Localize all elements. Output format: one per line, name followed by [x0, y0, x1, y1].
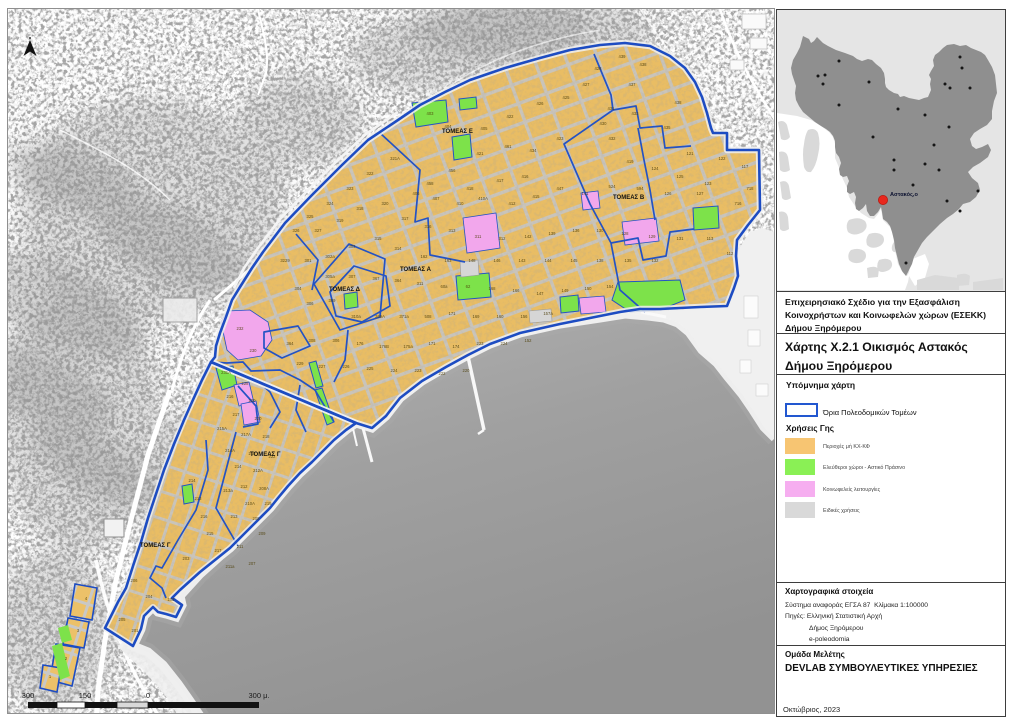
svg-text:205: 205	[119, 617, 127, 622]
svg-text:147: 147	[537, 291, 545, 296]
svg-text:312: 312	[499, 236, 507, 241]
svg-text:302a: 302a	[325, 254, 335, 259]
svg-text:174: 174	[453, 344, 461, 349]
svg-text:217: 217	[215, 548, 223, 553]
svg-text:176B: 176B	[379, 344, 389, 349]
svg-text:318: 318	[357, 206, 365, 211]
svg-text:135: 135	[625, 258, 633, 263]
svg-text:125: 125	[677, 174, 685, 179]
svg-text:369A: 369A	[375, 314, 385, 319]
svg-text:136: 136	[573, 228, 581, 233]
svg-text:122: 122	[719, 156, 727, 161]
svg-text:146: 146	[494, 258, 502, 263]
svg-text:309: 309	[329, 298, 337, 303]
svg-text:311: 311	[417, 281, 424, 286]
svg-text:319: 319	[337, 218, 345, 223]
svg-text:508: 508	[425, 314, 433, 319]
svg-text:438: 438	[640, 62, 648, 67]
svg-text:412: 412	[509, 201, 517, 206]
svg-text:215A: 215A	[217, 426, 227, 431]
svg-text:222: 222	[439, 371, 447, 376]
svg-text:211: 211	[237, 544, 244, 549]
svg-text:202: 202	[168, 597, 176, 602]
svg-text:423: 423	[557, 136, 565, 141]
svg-text:371a: 371a	[399, 314, 409, 319]
svg-text:143: 143	[519, 258, 527, 263]
svg-text:417: 417	[497, 178, 505, 183]
svg-text:60a: 60a	[441, 284, 449, 289]
svg-text:220: 220	[255, 416, 263, 421]
svg-text:127: 127	[697, 191, 705, 196]
svg-text:225: 225	[367, 366, 375, 371]
svg-text:407: 407	[433, 196, 441, 201]
svg-text:427: 427	[583, 82, 591, 87]
svg-text:150: 150	[79, 691, 92, 700]
svg-text:228: 228	[242, 381, 250, 386]
svg-text:208: 208	[253, 516, 261, 521]
svg-text:410A: 410A	[478, 196, 488, 201]
svg-text:314: 314	[395, 246, 403, 251]
svg-text:215: 215	[207, 531, 215, 536]
svg-text:128: 128	[622, 231, 630, 236]
svg-text:113: 113	[707, 236, 714, 241]
svg-text:126: 126	[665, 191, 673, 196]
svg-text:232: 232	[237, 326, 245, 331]
svg-text:214A: 214A	[225, 448, 235, 453]
svg-text:231A: 231A	[221, 370, 231, 375]
svg-text:171: 171	[449, 311, 457, 316]
svg-text:0: 0	[146, 691, 150, 700]
svg-text:320: 320	[382, 201, 390, 206]
svg-text:306: 306	[307, 301, 315, 306]
svg-text:121: 121	[687, 151, 695, 156]
svg-text:210A: 210A	[245, 501, 255, 506]
svg-text:415: 415	[533, 194, 541, 199]
svg-text:322: 322	[367, 171, 375, 176]
svg-text:307: 307	[349, 274, 357, 279]
svg-text:175a: 175a	[403, 344, 413, 349]
svg-text:434: 434	[530, 148, 538, 153]
svg-text:324: 324	[327, 201, 335, 206]
svg-text:157a: 157a	[543, 311, 553, 316]
svg-text:304: 304	[295, 286, 303, 291]
svg-text:160: 160	[497, 314, 505, 319]
svg-text:323: 323	[347, 186, 355, 191]
svg-text:123: 123	[705, 181, 713, 186]
svg-text:213a: 213a	[223, 488, 233, 493]
svg-text:364: 364	[395, 278, 403, 283]
svg-text:162: 162	[421, 254, 429, 259]
svg-text:214: 214	[189, 478, 197, 483]
svg-text:432: 432	[609, 136, 617, 141]
svg-text:716: 716	[735, 201, 743, 206]
svg-text:152: 152	[525, 338, 533, 343]
svg-text:224: 224	[391, 368, 399, 373]
svg-text:141: 141	[582, 191, 590, 196]
svg-text:ΤΟΜΕΑΣ Β: ΤΟΜΕΑΣ Β	[613, 195, 645, 201]
svg-text:209: 209	[259, 531, 267, 536]
svg-text:223: 223	[477, 341, 485, 346]
svg-text:214: 214	[235, 464, 243, 469]
svg-text:204: 204	[146, 594, 154, 599]
svg-text:216: 216	[227, 394, 235, 399]
svg-text:217A: 217A	[241, 432, 251, 437]
svg-text:426: 426	[537, 101, 545, 106]
svg-text:213: 213	[231, 514, 239, 519]
svg-text:156: 156	[521, 314, 529, 319]
svg-text:316: 316	[425, 224, 433, 229]
svg-text:211a: 211a	[225, 564, 235, 569]
svg-text:3229: 3229	[280, 258, 290, 263]
svg-text:405: 405	[481, 126, 489, 131]
svg-text:130: 130	[597, 228, 605, 233]
svg-text:406: 406	[413, 191, 421, 196]
svg-text:131: 131	[677, 236, 685, 241]
svg-text:327: 327	[315, 228, 323, 233]
svg-text:226: 226	[343, 364, 351, 369]
svg-text:124: 124	[652, 166, 660, 171]
svg-text:439: 439	[619, 54, 627, 59]
svg-text:154: 154	[607, 284, 615, 289]
svg-text:315: 315	[375, 236, 383, 241]
svg-text:300: 300	[22, 691, 35, 700]
svg-text:206: 206	[131, 578, 139, 583]
svg-text:438: 438	[675, 100, 683, 105]
svg-text:145: 145	[571, 258, 579, 263]
svg-text:422: 422	[507, 114, 515, 119]
svg-text:430: 430	[600, 121, 608, 126]
svg-text:718: 718	[747, 186, 755, 191]
svg-text:447: 447	[557, 186, 565, 191]
svg-text:306: 306	[333, 338, 341, 343]
svg-text:461: 461	[505, 144, 513, 149]
svg-text:208A: 208A	[259, 486, 269, 491]
svg-text:144: 144	[545, 258, 553, 263]
svg-text:410: 410	[457, 201, 465, 206]
svg-text:168: 168	[489, 286, 497, 291]
svg-text:138: 138	[597, 258, 605, 263]
svg-text:301: 301	[305, 258, 313, 263]
svg-text:220: 220	[463, 368, 471, 373]
svg-text:326: 326	[293, 228, 301, 233]
svg-text:ΤΟΜΕΑΣ Α: ΤΟΜΕΑΣ Α	[400, 267, 432, 273]
svg-text:213: 213	[195, 496, 203, 501]
svg-text:166: 166	[513, 288, 521, 293]
svg-text:224: 224	[501, 341, 509, 346]
svg-text:364: 364	[287, 341, 295, 346]
svg-text:524: 524	[609, 184, 617, 189]
svg-text:227: 227	[319, 364, 327, 369]
svg-text:435: 435	[664, 125, 672, 130]
svg-text:310a: 310a	[351, 314, 361, 319]
svg-text:139: 139	[549, 231, 557, 236]
svg-text:311: 311	[475, 234, 482, 239]
svg-text:594: 594	[637, 186, 645, 191]
svg-text:148: 148	[469, 258, 477, 263]
svg-text:218: 218	[263, 434, 271, 439]
svg-text:203: 203	[183, 556, 191, 561]
svg-text:171: 171	[429, 341, 437, 346]
svg-text:216: 216	[201, 514, 209, 519]
svg-text:212A: 212A	[253, 468, 263, 473]
svg-text:142: 142	[525, 234, 533, 239]
svg-text:416: 416	[522, 174, 530, 179]
svg-text:ΤΟΜΕΑΣ Δ: ΤΟΜΕΑΣ Δ	[329, 287, 361, 293]
svg-text:437: 437	[629, 82, 637, 87]
svg-text:300 μ.: 300 μ.	[248, 691, 269, 700]
svg-text:419: 419	[627, 159, 635, 164]
svg-text:112: 112	[727, 251, 734, 256]
svg-text:207: 207	[249, 561, 257, 566]
svg-text:223: 223	[415, 368, 423, 373]
svg-text:229: 229	[297, 361, 305, 366]
svg-text:217: 217	[233, 412, 241, 417]
svg-text:ΤΟΜΕΑΣ Ε: ΤΟΜΕΑΣ Ε	[442, 129, 473, 135]
svg-text:313: 313	[449, 228, 457, 233]
svg-text:Αστακός,ο: Αστακός,ο	[890, 192, 918, 198]
svg-text:149: 149	[562, 288, 570, 293]
svg-text:317: 317	[402, 216, 410, 221]
svg-text:321A: 321A	[390, 156, 400, 161]
svg-text:219: 219	[265, 501, 273, 506]
svg-text:201: 201	[132, 628, 140, 633]
svg-text:425: 425	[563, 95, 571, 100]
svg-text:132: 132	[652, 258, 660, 263]
svg-text:163: 163	[445, 258, 453, 263]
svg-text:431: 431	[608, 106, 616, 111]
svg-text:ΤΟΜΕΑΣ Γ: ΤΟΜΕΑΣ Γ	[250, 452, 281, 458]
svg-text:458: 458	[427, 181, 435, 186]
svg-text:428: 428	[595, 66, 603, 71]
svg-text:117: 117	[742, 164, 749, 169]
svg-text:169: 169	[473, 314, 481, 319]
svg-text:305a: 305a	[325, 274, 335, 279]
svg-text:456: 456	[449, 168, 457, 173]
svg-text:418: 418	[467, 186, 475, 191]
svg-text:212: 212	[241, 484, 249, 489]
svg-text:220: 220	[249, 398, 257, 403]
svg-text:176: 176	[357, 341, 365, 346]
svg-text:303: 303	[349, 244, 357, 249]
svg-text:367: 367	[373, 276, 381, 281]
svg-text:150: 150	[585, 286, 593, 291]
svg-text:230: 230	[250, 348, 258, 353]
svg-text:421: 421	[477, 151, 485, 156]
svg-text:308: 308	[309, 338, 317, 343]
svg-text:62: 62	[466, 284, 471, 289]
svg-text:403: 403	[427, 111, 435, 116]
svg-text:ΤΟΜΕΑΣ Γ: ΤΟΜΕΑΣ Γ	[140, 543, 171, 549]
svg-text:433: 433	[632, 111, 640, 116]
svg-text:129: 129	[649, 234, 657, 239]
svg-text:325: 325	[307, 214, 315, 219]
